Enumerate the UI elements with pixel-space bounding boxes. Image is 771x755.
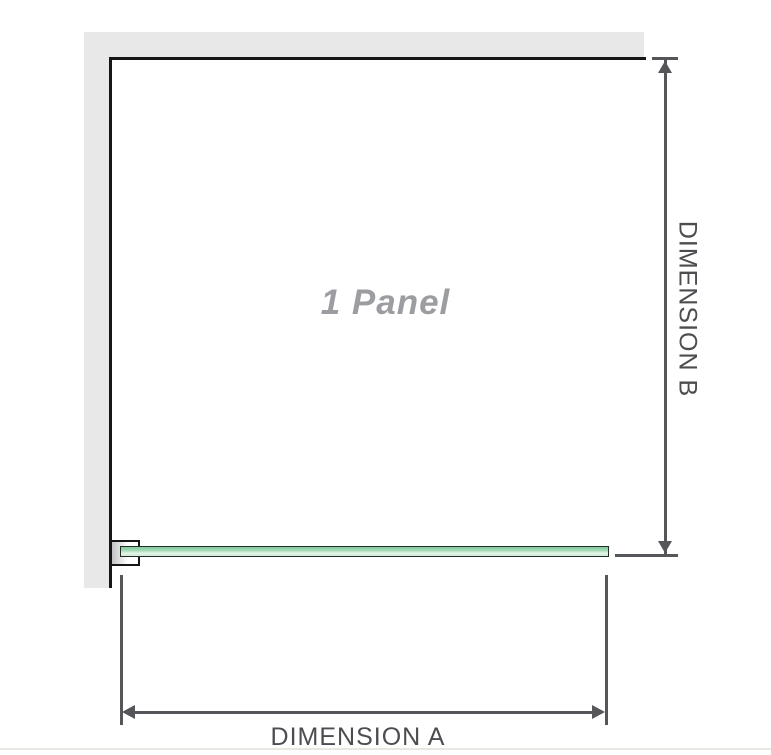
dimension-a-line (131, 711, 597, 714)
dimension-b-arrowhead-bottom-icon (658, 541, 672, 553)
dimension-a-arrowhead-left-icon (122, 705, 135, 719)
wall-strip-top (84, 32, 644, 57)
dimension-a-arrowhead-right-icon (592, 705, 605, 719)
dimension-a-extension-left (120, 575, 123, 725)
panel-dimension-diagram: 1 Panel DIMENSION B DIMENSION A (0, 0, 771, 755)
dimension-b-arrowhead-top-icon (658, 61, 672, 73)
dimension-b-line (664, 59, 667, 555)
dimension-a-extension-right (605, 575, 608, 725)
panel-area: 1 Panel (112, 60, 645, 546)
panel-count-label: 1 Panel (307, 283, 451, 323)
wall-strip-left (84, 32, 110, 588)
dimension-b-tick-bottom (615, 554, 678, 557)
glass-panel-bar (120, 546, 609, 557)
dimension-b-label: DIMENSION B (673, 221, 702, 397)
page-bottom-rule (0, 748, 771, 750)
